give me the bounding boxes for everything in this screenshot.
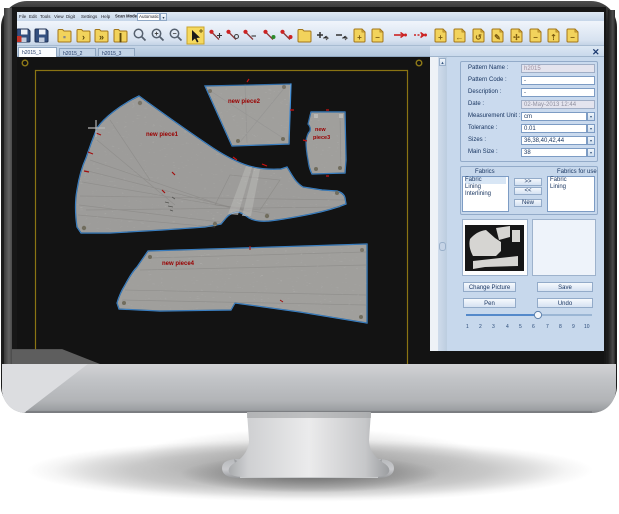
svg-text:⇡: ⇡	[550, 33, 557, 42]
svg-text:❙: ❙	[117, 32, 125, 43]
svg-text:−: −	[533, 33, 538, 42]
svg-text:+: +	[438, 33, 443, 42]
svg-text:✢: ✢	[513, 33, 520, 42]
svg-text:−: −	[570, 33, 575, 42]
svg-text:←: ←	[456, 33, 464, 42]
svg-text:»: »	[99, 32, 104, 42]
svg-text:+: +	[154, 31, 158, 38]
svg-text:›: ›	[82, 32, 85, 42]
svg-text:−: −	[172, 31, 176, 38]
svg-text:+: +	[357, 33, 362, 42]
svg-text:↺: ↺	[475, 33, 482, 42]
svg-text:−: −	[375, 33, 380, 42]
svg-text:✎: ✎	[494, 33, 501, 42]
svg-text:▪: ▪	[63, 32, 66, 42]
